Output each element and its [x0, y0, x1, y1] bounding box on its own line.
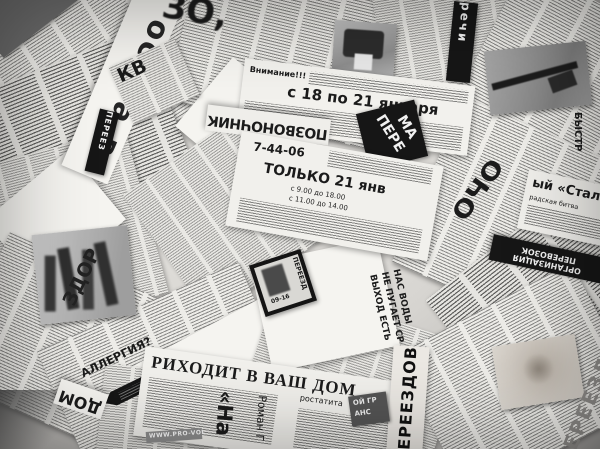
- na-quote-label: «На: [212, 390, 236, 437]
- ans-label: АНС: [354, 409, 371, 418]
- roman-label: Роман Г: [254, 395, 268, 441]
- bystro-label: БЫСТР: [572, 112, 582, 151]
- figure-silhouette: [45, 256, 56, 312]
- pereez-label: ПЕРЕЕЗ: [96, 110, 114, 151]
- kvartiry-label: КВ: [115, 57, 150, 87]
- rechi-label: речи: [456, 2, 472, 44]
- face-shadow: [519, 351, 557, 386]
- rifle-photo: [484, 41, 592, 115]
- pereezdov-scrap: ПЕРЕЕЗДОВ: [386, 345, 429, 449]
- attention-label: Внимание!!!: [249, 66, 306, 81]
- website-label: WWW.PRO-VOL: [149, 430, 206, 440]
- oi-gr-box: ОЙ ГР АНС: [348, 392, 390, 427]
- oi-gr-label: ОЙ ГР: [353, 397, 378, 407]
- ad-photo-blob: [261, 263, 291, 296]
- typewriter-paper: [354, 53, 373, 70]
- pereezdov-headline: ПЕРЕЕЗДОВ: [395, 346, 419, 449]
- newspaper-collage-photo: осква в ЗО, КВ речи Внимание!!! с 18 по …: [0, 0, 600, 449]
- face-photo: [492, 334, 585, 410]
- phone-number: 7-44-06: [253, 141, 306, 159]
